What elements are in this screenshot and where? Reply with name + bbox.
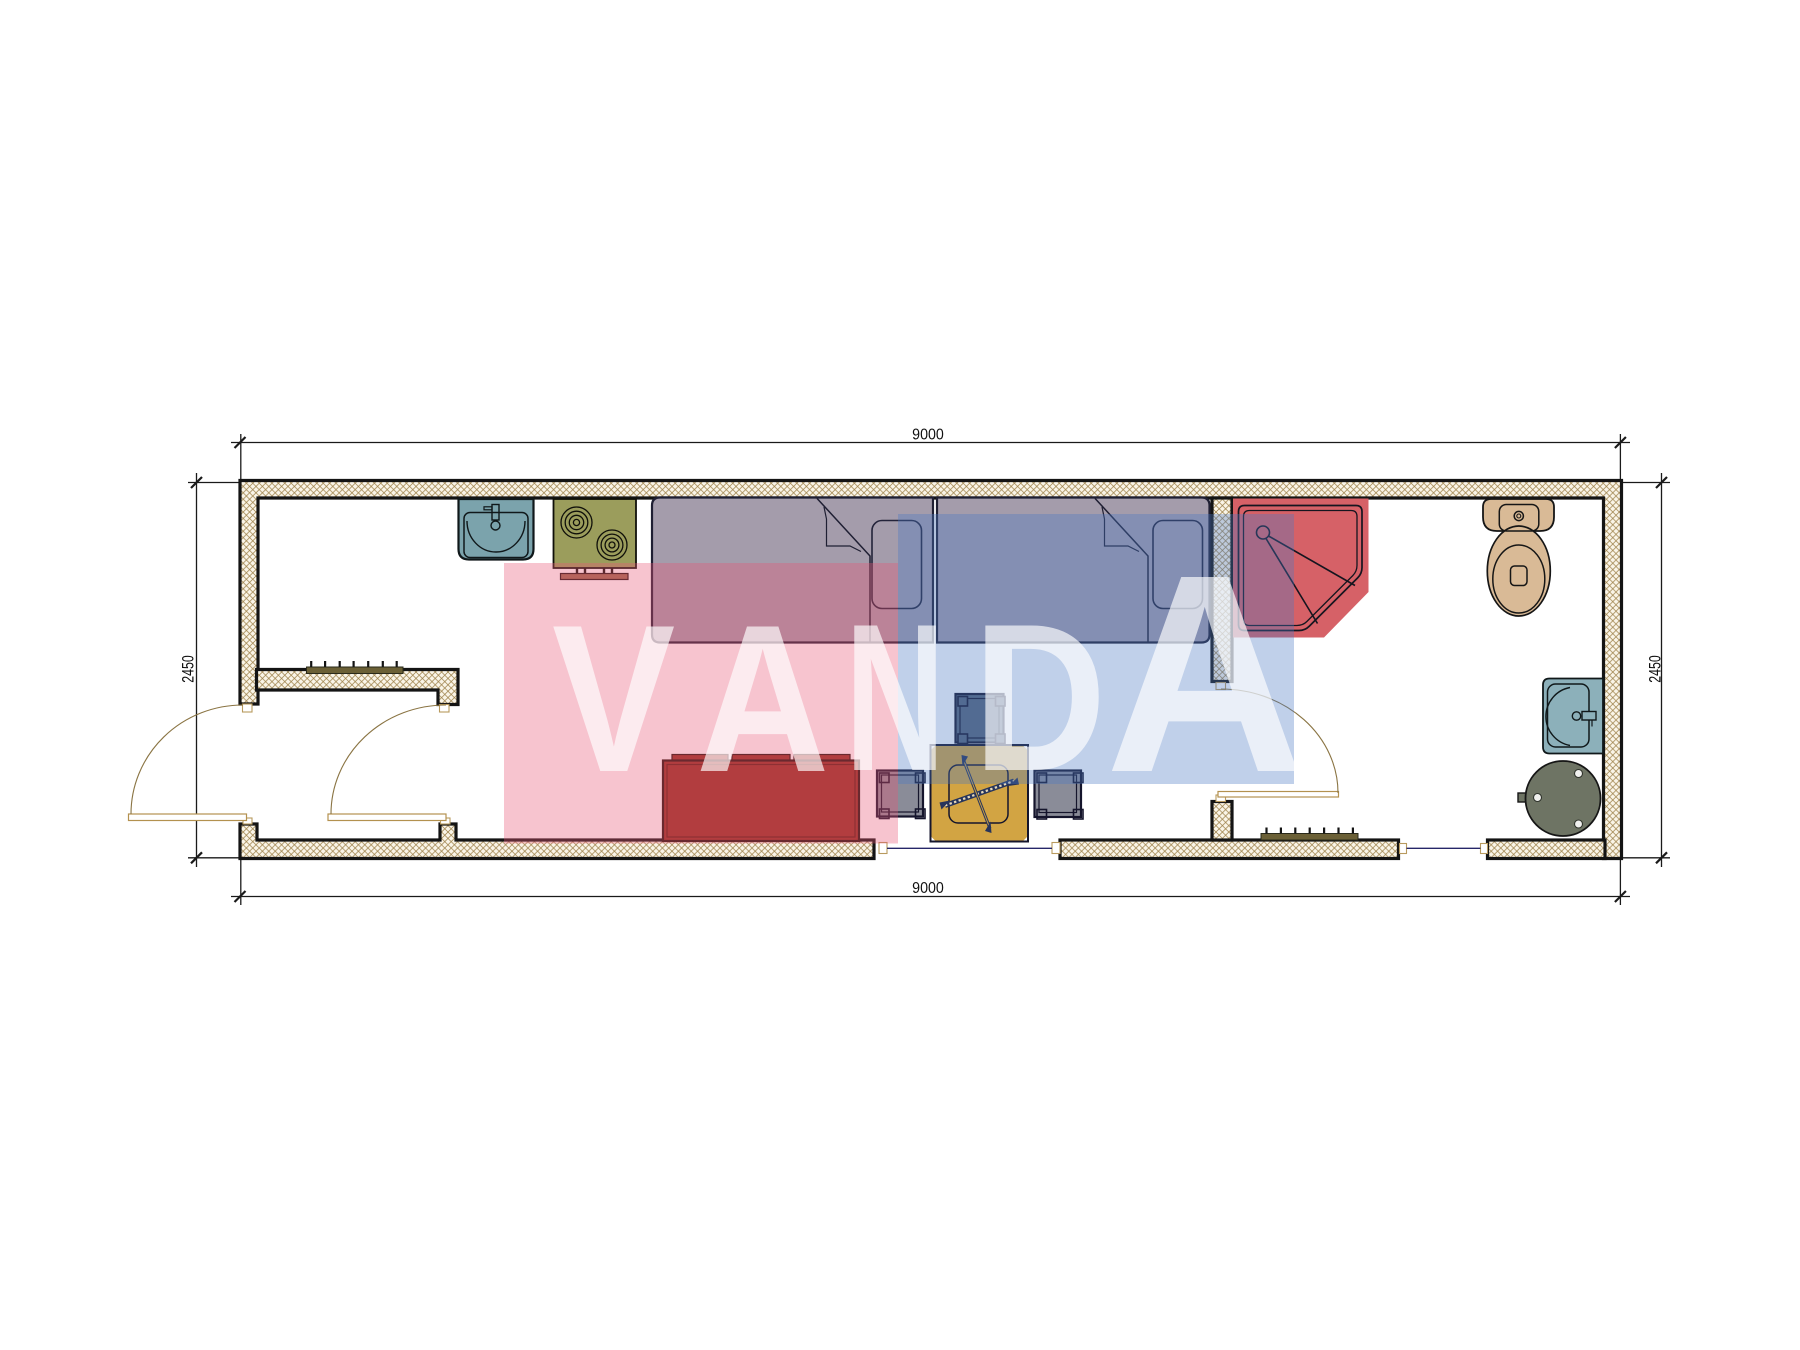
svg-text:9000: 9000	[912, 426, 944, 444]
svg-text:V: V	[552, 581, 675, 816]
svg-text:9000: 9000	[912, 879, 944, 897]
svg-text:A: A	[696, 581, 829, 816]
svg-text:N: N	[845, 580, 945, 815]
svg-text:A: A	[1105, 516, 1305, 831]
svg-text:2450: 2450	[1647, 655, 1665, 683]
svg-text:2450: 2450	[180, 655, 198, 683]
svg-text:D: D	[973, 580, 1106, 815]
